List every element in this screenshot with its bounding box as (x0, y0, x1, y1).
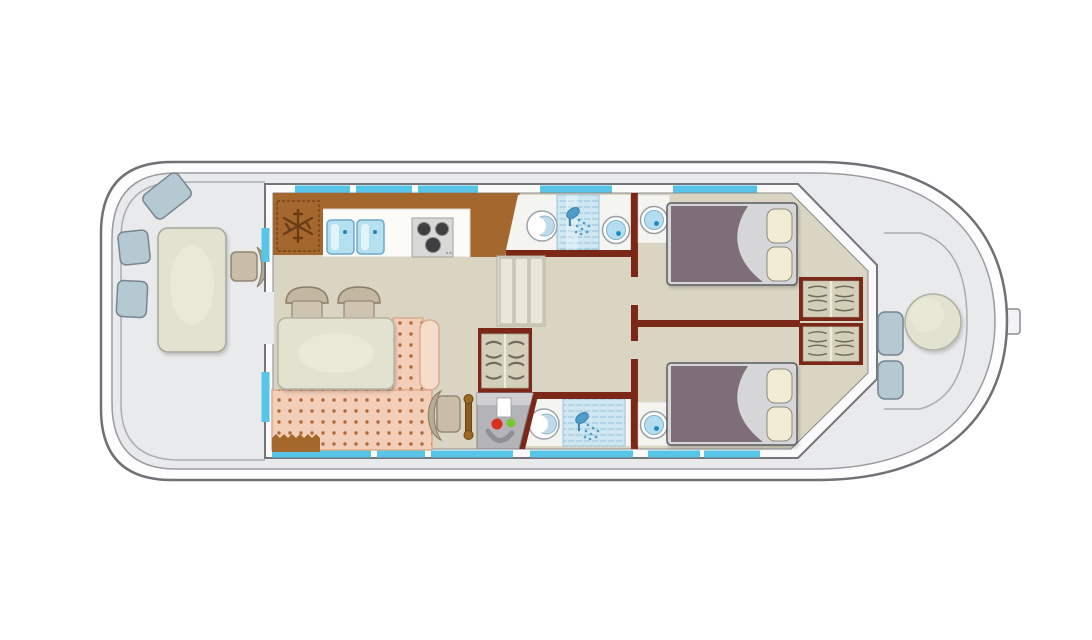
stove-burner-icon (436, 223, 449, 236)
window (262, 372, 270, 422)
stern-seat-cushion (878, 361, 903, 399)
wardrobe-cabin-aft (799, 323, 863, 365)
helm-seat (437, 396, 460, 432)
green-indicator (507, 419, 516, 428)
wardrobe-corridor (478, 328, 532, 394)
step-tread (530, 258, 543, 324)
pillow (767, 369, 792, 403)
bow-seat-cushion (116, 280, 148, 318)
stove-burner-icon (418, 223, 431, 236)
red-indicator (492, 419, 503, 430)
window (418, 186, 478, 193)
steering-wheel-icon (464, 395, 473, 440)
bow-table-highlight (170, 245, 214, 325)
pillow (767, 209, 792, 243)
window (295, 186, 350, 193)
wall (631, 359, 638, 392)
pillow (767, 247, 792, 281)
salon-table-highlight (298, 333, 374, 373)
step-tread (515, 258, 528, 324)
stove-burner-icon (426, 238, 441, 253)
wardrobe-cabin-forward (799, 277, 863, 321)
window (530, 451, 633, 458)
shower (563, 396, 625, 446)
dining-chair (338, 287, 380, 320)
stove (412, 218, 453, 257)
window (431, 451, 513, 458)
window (540, 186, 612, 193)
step-tread (500, 258, 513, 324)
floor-plan-stage (0, 0, 1092, 640)
shower-glass (566, 195, 578, 250)
companionway-steps (497, 256, 545, 326)
stern-table-highlight (910, 298, 944, 332)
wall (631, 257, 638, 277)
entry-door-opening (263, 292, 274, 344)
window (356, 186, 412, 193)
washbasin (641, 207, 668, 234)
washbasin (641, 412, 668, 439)
stern-seat-cushion (878, 312, 903, 355)
sink (357, 220, 384, 254)
dining-chair (286, 287, 328, 320)
bathroom-aft (524, 396, 630, 446)
window (704, 451, 760, 458)
toilet (527, 211, 557, 241)
window (262, 228, 270, 262)
console-display (497, 398, 511, 417)
cabin-divider-wall (638, 320, 800, 327)
double-bed-forward (667, 203, 797, 285)
wall (631, 392, 638, 449)
window (648, 451, 700, 458)
wall (528, 392, 638, 399)
wall (631, 305, 638, 341)
galley (273, 193, 520, 257)
double-bed-aft (667, 363, 797, 445)
window (673, 186, 757, 193)
window (377, 451, 425, 458)
bow-chair (231, 252, 257, 281)
sink (327, 220, 354, 254)
wall (631, 193, 638, 257)
bathroom-forward (506, 195, 630, 250)
pillow (767, 407, 792, 441)
houseboat-floor-plan (0, 0, 1092, 640)
sofa-backrest (420, 320, 439, 390)
bow-seat-cushion (117, 230, 150, 266)
washbasin (603, 217, 630, 244)
